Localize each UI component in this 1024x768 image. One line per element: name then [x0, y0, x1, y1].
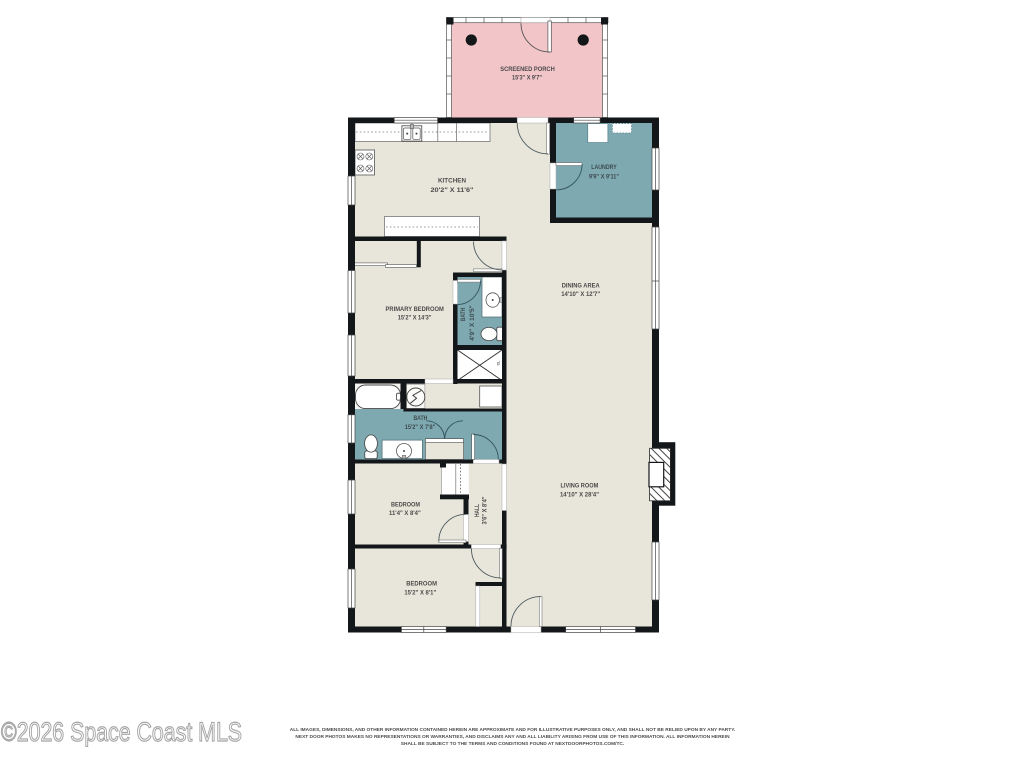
svg-text:14'10" X 28'4": 14'10" X 28'4" [560, 492, 599, 499]
svg-text:LAUNDRY: LAUNDRY [591, 164, 617, 171]
svg-text:15'3" X 9'7": 15'3" X 9'7" [512, 75, 542, 82]
svg-text:15'2" X 8'1": 15'2" X 8'1" [404, 589, 436, 596]
svg-text:HALL: HALL [474, 504, 481, 517]
svg-text:15'2" X 14'3": 15'2" X 14'3" [398, 315, 432, 322]
svg-text:BEDROOM: BEDROOM [391, 501, 420, 508]
svg-text:CL: CL [497, 361, 501, 366]
svg-text:DINING AREA: DINING AREA [562, 282, 600, 289]
svg-text:KITCHEN: KITCHEN [438, 177, 466, 184]
svg-text:PRIMARY BEDROOM: PRIMARY BEDROOM [386, 306, 445, 313]
svg-text:11'4" X 8'4": 11'4" X 8'4" [389, 510, 421, 517]
svg-text:BEDROOM: BEDROOM [406, 581, 437, 588]
svg-text:LIVING ROOM: LIVING ROOM [561, 482, 599, 489]
svg-text:20'2" X 11'6": 20'2" X 11'6" [431, 187, 474, 194]
svg-text:9'9" X 9'11": 9'9" X 9'11" [589, 174, 619, 181]
svg-text:14'10" X 12'7": 14'10" X 12'7" [561, 291, 600, 298]
svg-text:15'2" X 7'8": 15'2" X 7'8" [405, 424, 436, 431]
svg-text:4'9" X 10'5": 4'9" X 10'5" [469, 305, 476, 341]
svg-text:BATH: BATH [414, 415, 428, 422]
svg-text:3'6" X 8'4": 3'6" X 8'4" [481, 497, 488, 525]
svg-text:SCREENED PORCH: SCREENED PORCH [500, 66, 555, 73]
svg-text:BATH: BATH [460, 308, 467, 322]
